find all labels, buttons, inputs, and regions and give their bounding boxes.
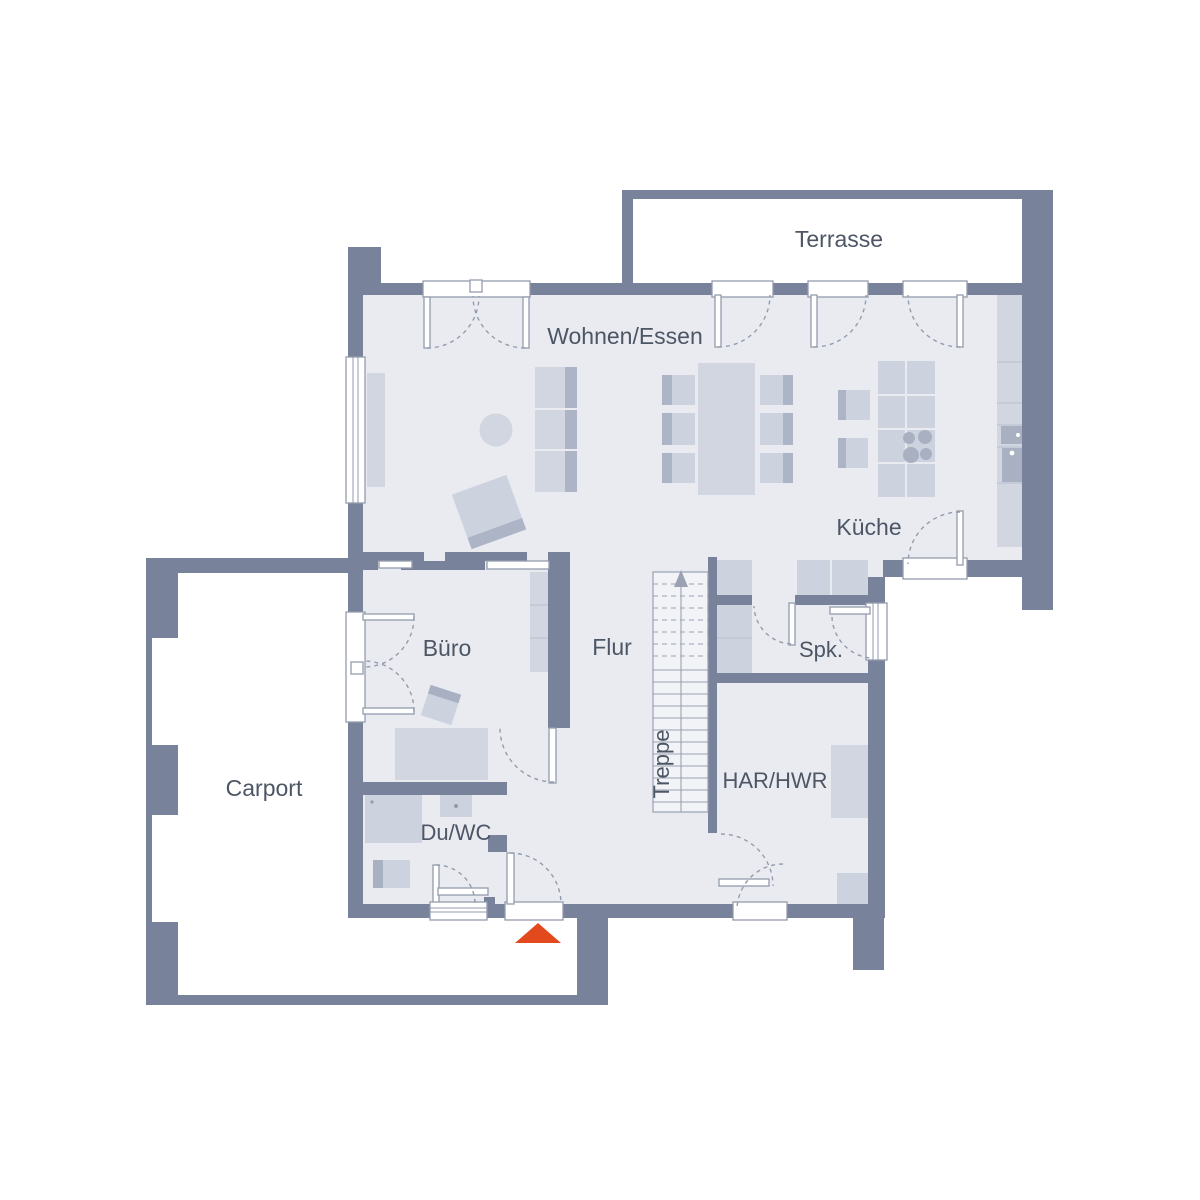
- wall-terrace-top: [622, 190, 1053, 199]
- carport-pillar-2: [146, 745, 178, 815]
- label-spk: Spk.: [799, 637, 843, 662]
- chair-seat: [672, 413, 695, 445]
- door-leaf: [523, 297, 529, 348]
- sideboard: [367, 373, 385, 487]
- label-kueche: Küche: [836, 514, 901, 540]
- chair-back: [783, 413, 793, 445]
- chair-seat: [760, 453, 783, 483]
- toilet-bowl: [383, 860, 410, 888]
- window-frame: [430, 902, 487, 920]
- pantry-door-leaf: [789, 603, 795, 645]
- cabinet: [797, 560, 868, 595]
- door-handle: [351, 662, 363, 674]
- chair-back: [783, 375, 793, 405]
- stool-back: [838, 390, 846, 420]
- carport-pillar-1: [146, 568, 178, 638]
- wall-living-south-a: [363, 552, 378, 570]
- wall-carport-bottom: [146, 995, 608, 1005]
- label-flur: Flur: [592, 634, 632, 660]
- chair-seat: [672, 375, 695, 405]
- label-du-wc: Du/WC: [421, 820, 492, 845]
- wall-south: [348, 904, 885, 918]
- wall-se-stub: [853, 917, 884, 970]
- burner: [918, 430, 932, 444]
- wall-bath-top: [363, 782, 507, 795]
- dining-chairs-left: [662, 375, 695, 483]
- window-bath-south: [430, 902, 487, 920]
- door-leaf: [811, 295, 817, 347]
- dining-table: [698, 363, 755, 495]
- door-leaf: [363, 708, 414, 714]
- slider-rail: [378, 552, 424, 561]
- wall-pantry-stub: [717, 595, 752, 605]
- wall-carport-right: [577, 918, 608, 1005]
- carport-pillar-3: [146, 922, 178, 1005]
- bath-sill: [438, 888, 488, 895]
- washer: [837, 873, 868, 905]
- door-frame: [505, 902, 563, 920]
- fridge-knob: [1010, 451, 1015, 456]
- door-leaf: [957, 295, 963, 347]
- chair-seat: [672, 453, 695, 483]
- slider-rail: [485, 552, 527, 561]
- entrance-marker-triangle: [515, 923, 561, 943]
- door-leaf: [957, 511, 963, 565]
- door-leaf: [715, 295, 721, 347]
- wall-carport-top: [146, 558, 363, 573]
- label-buero: Büro: [423, 635, 472, 661]
- door-handle: [470, 280, 482, 292]
- kitchen-cabinets-south: [797, 560, 868, 595]
- slider-panel: [379, 561, 412, 568]
- shower-drain: [370, 800, 373, 803]
- tall-cabinet: [717, 560, 752, 673]
- burner: [903, 447, 919, 463]
- stool-seat: [846, 438, 868, 468]
- round-table: [480, 414, 513, 447]
- window-west: [346, 357, 365, 503]
- chair-back: [783, 453, 793, 483]
- floor-plan-canvas: Terrasse Wohnen/Essen Küche Büro Flur Tr…: [0, 0, 1200, 1200]
- label-wohnen-essen: Wohnen/Essen: [547, 323, 703, 349]
- chair-back: [662, 375, 672, 405]
- wall-east-upper: [1022, 199, 1053, 610]
- wall-office-partition: [548, 552, 570, 728]
- chair-seat: [760, 413, 783, 445]
- burner: [920, 448, 932, 460]
- slider-panel: [487, 561, 549, 569]
- chair-seat: [760, 375, 783, 405]
- label-carport: Carport: [226, 775, 303, 801]
- door-leaf: [830, 607, 870, 614]
- dining-chairs-right: [760, 375, 793, 483]
- floor-plan-drawing: Terrasse Wohnen/Essen Küche Büro Flur Tr…: [0, 0, 1200, 1200]
- oven-knob: [1016, 433, 1020, 437]
- door-leaf: [424, 297, 430, 348]
- label-har-hwr: HAR/HWR: [722, 768, 827, 793]
- desk: [395, 728, 488, 780]
- window-frame: [346, 357, 365, 503]
- wall-living-south-b: [445, 552, 485, 570]
- sofa-back: [565, 367, 577, 492]
- burner: [903, 432, 915, 444]
- wall-pantry-south: [717, 673, 885, 683]
- door-leaf: [507, 853, 514, 904]
- sink-drain: [454, 804, 458, 808]
- wall-pantry-north: [795, 595, 870, 605]
- wall-terrace-left: [622, 190, 633, 288]
- sofa-seat: [535, 367, 565, 492]
- label-terrasse: Terrasse: [795, 226, 883, 252]
- door-leaf: [363, 614, 414, 620]
- bath-door-leaf: [433, 865, 439, 904]
- door-frame: [733, 902, 787, 920]
- wall-stairs-east: [708, 557, 717, 833]
- door-leaf: [719, 879, 769, 886]
- chair-back: [662, 413, 672, 445]
- office-door-leaf: [549, 728, 556, 783]
- utility-unit: [831, 745, 868, 818]
- toilet-tank: [373, 860, 383, 888]
- stool-seat: [846, 390, 870, 420]
- label-treppe: Treppe: [649, 730, 674, 799]
- stool-back: [838, 438, 846, 468]
- cabinet-body: [717, 560, 752, 673]
- kitchen-island: [878, 361, 935, 497]
- chair-back: [662, 453, 672, 483]
